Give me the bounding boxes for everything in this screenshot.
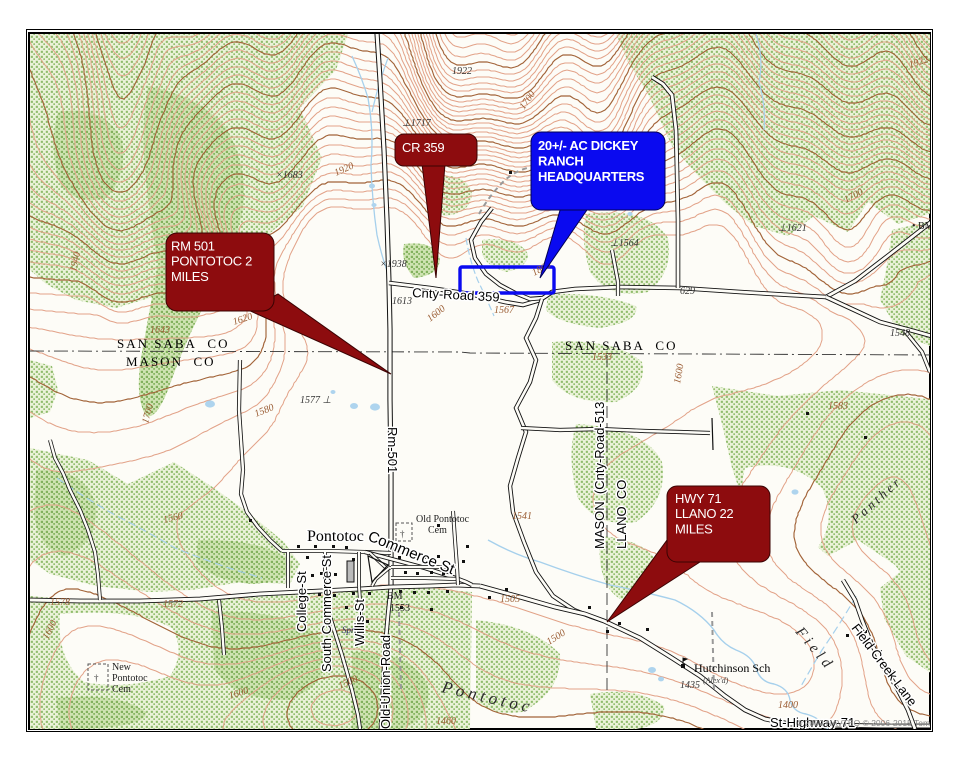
- svg-text:†: †: [94, 673, 99, 683]
- svg-text:Old-Union-Road: Old-Union-Road: [378, 635, 393, 729]
- svg-text:1572: 1572: [163, 599, 183, 610]
- svg-text:HEADQUARTERS: HEADQUARTERS: [538, 169, 645, 184]
- svg-text:1578: 1578: [50, 597, 70, 608]
- svg-text:⊥1621: ⊥1621: [778, 223, 807, 234]
- svg-text:1922: 1922: [452, 66, 472, 77]
- svg-text:1583: 1583: [828, 401, 848, 412]
- svg-text:RM 501: RM 501: [171, 239, 215, 254]
- svg-text:1548: 1548: [890, 328, 910, 339]
- svg-text:© 2009 NAVTEQ © 2006-2015 TomT: © 2009 NAVTEQ © 2006-2015 TomTom: [796, 718, 946, 728]
- svg-text:1533: 1533: [592, 352, 612, 363]
- svg-text:1435: 1435: [680, 680, 700, 691]
- svg-text:1577 ⊥: 1577 ⊥: [300, 395, 332, 406]
- svg-text:CR 359: CR 359: [402, 140, 444, 155]
- svg-text:LLANO 22: LLANO 22: [675, 506, 733, 521]
- svg-text:LLANO CO: LLANO CO: [614, 480, 629, 549]
- svg-text:×1683: ×1683: [276, 170, 303, 181]
- svg-text:Cem: Cem: [112, 684, 131, 695]
- svg-text:1643: 1643: [150, 325, 170, 336]
- svg-text:SAN SABA CO: SAN SABA CO: [565, 338, 678, 353]
- svg-text:1460: 1460: [436, 716, 456, 727]
- svg-text:1505: 1505: [500, 594, 520, 605]
- svg-text:Rm-501: Rm-501: [385, 427, 400, 473]
- svg-text:†: †: [400, 529, 405, 539]
- svg-text:South Commerce St: South Commerce St: [319, 555, 334, 672]
- svg-text:Pontotoc: Pontotoc: [307, 528, 364, 545]
- svg-text:MILES: MILES: [171, 269, 209, 284]
- svg-text:1400: 1400: [778, 700, 798, 711]
- svg-text:New: New: [112, 662, 132, 673]
- svg-text:MILES: MILES: [675, 521, 713, 536]
- svg-text:Old Pontotoc: Old Pontotoc: [416, 514, 470, 525]
- svg-text:College-St: College-St: [294, 571, 309, 632]
- svg-text:629: 629: [680, 286, 695, 297]
- svg-text:MASON (Cnty-Road-513: MASON (Cnty-Road-513: [592, 402, 607, 549]
- svg-text:MASON CO: MASON CO: [126, 354, 216, 369]
- svg-text:×1938: ×1938: [380, 259, 407, 270]
- svg-text:HWY 71: HWY 71: [675, 491, 721, 506]
- svg-text:Pontotoc: Pontotoc: [112, 673, 148, 684]
- svg-text:1553: 1553: [390, 603, 410, 614]
- svg-text:Willis-St: Willis-St: [352, 599, 367, 646]
- svg-text:1567: 1567: [494, 305, 515, 316]
- svg-text:Cem: Cem: [428, 525, 447, 536]
- svg-text:⊥1564: ⊥1564: [610, 238, 639, 249]
- svg-text:1541: 1541: [512, 511, 532, 522]
- svg-text:Hutchinson Sch: Hutchinson Sch: [694, 661, 770, 675]
- svg-text:PONTOTOC 2: PONTOTOC 2: [171, 254, 252, 269]
- svg-text:20+/- AC DICKEY: 20+/- AC DICKEY: [538, 138, 639, 153]
- svg-text:1613: 1613: [392, 296, 412, 307]
- svg-text:(Alex'd): (Alex'd): [703, 676, 729, 685]
- svg-text:Spr: Spr: [342, 625, 355, 635]
- svg-text:BM: BM: [387, 591, 403, 602]
- svg-text:RANCH: RANCH: [538, 154, 583, 169]
- svg-text:⊥1717: ⊥1717: [402, 118, 432, 129]
- svg-text:SAN SABA CO: SAN SABA CO: [117, 336, 230, 351]
